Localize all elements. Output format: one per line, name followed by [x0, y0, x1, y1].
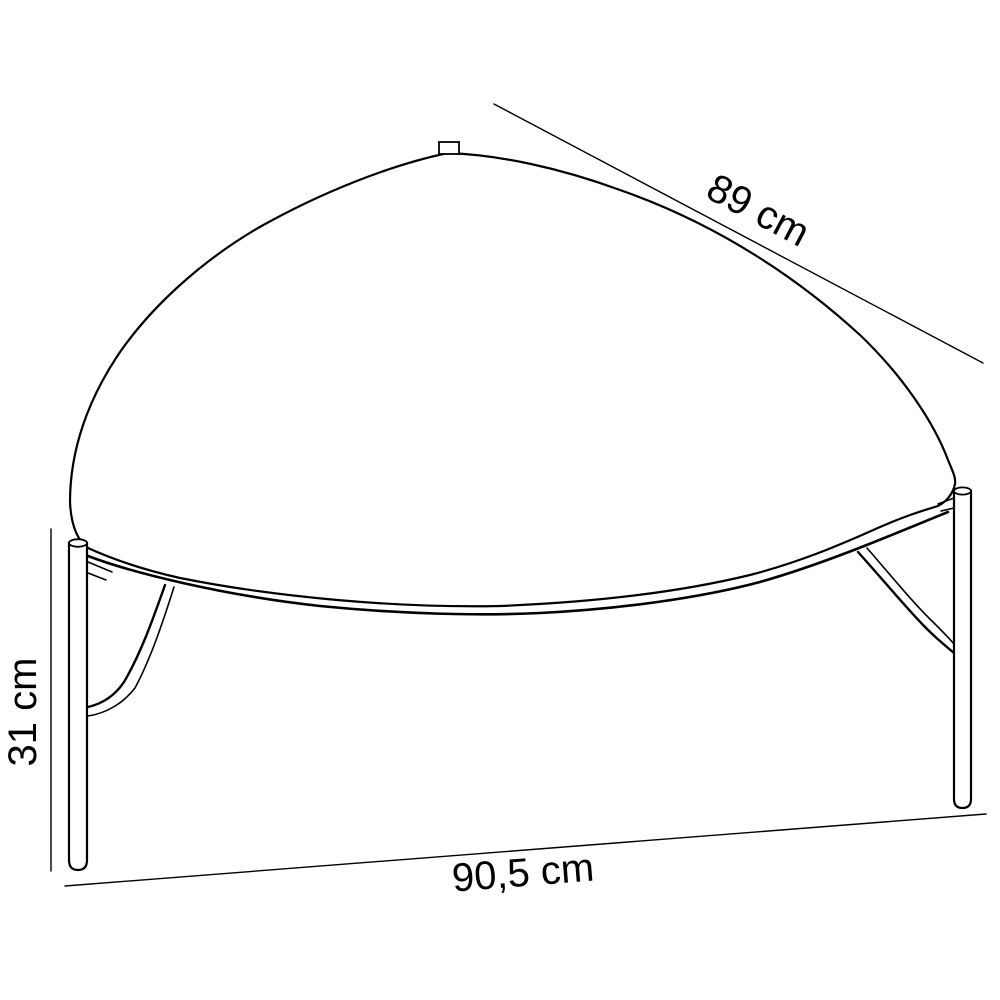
- height-dimension-label: 31 cm: [1, 658, 45, 767]
- left-leg-body: [69, 543, 87, 870]
- left-frame-joint: [88, 562, 112, 580]
- left-leg-brace: [88, 585, 174, 716]
- coffee-table-dimension-diagram: 89 cm 31 cm 90,5 cm: [0, 0, 1000, 1000]
- back-leg-top: [439, 142, 459, 154]
- tabletop-outline: [70, 153, 955, 606]
- left-leg-cap: [69, 539, 87, 547]
- right-leg-brace: [858, 548, 954, 653]
- right-leg-body: [954, 491, 971, 808]
- dimension-drawing-canvas: 89 cm 31 cm 90,5 cm: [0, 0, 1000, 1000]
- right-leg: [954, 487, 971, 808]
- left-leg: [69, 539, 87, 870]
- right-leg-cap: [954, 487, 971, 494]
